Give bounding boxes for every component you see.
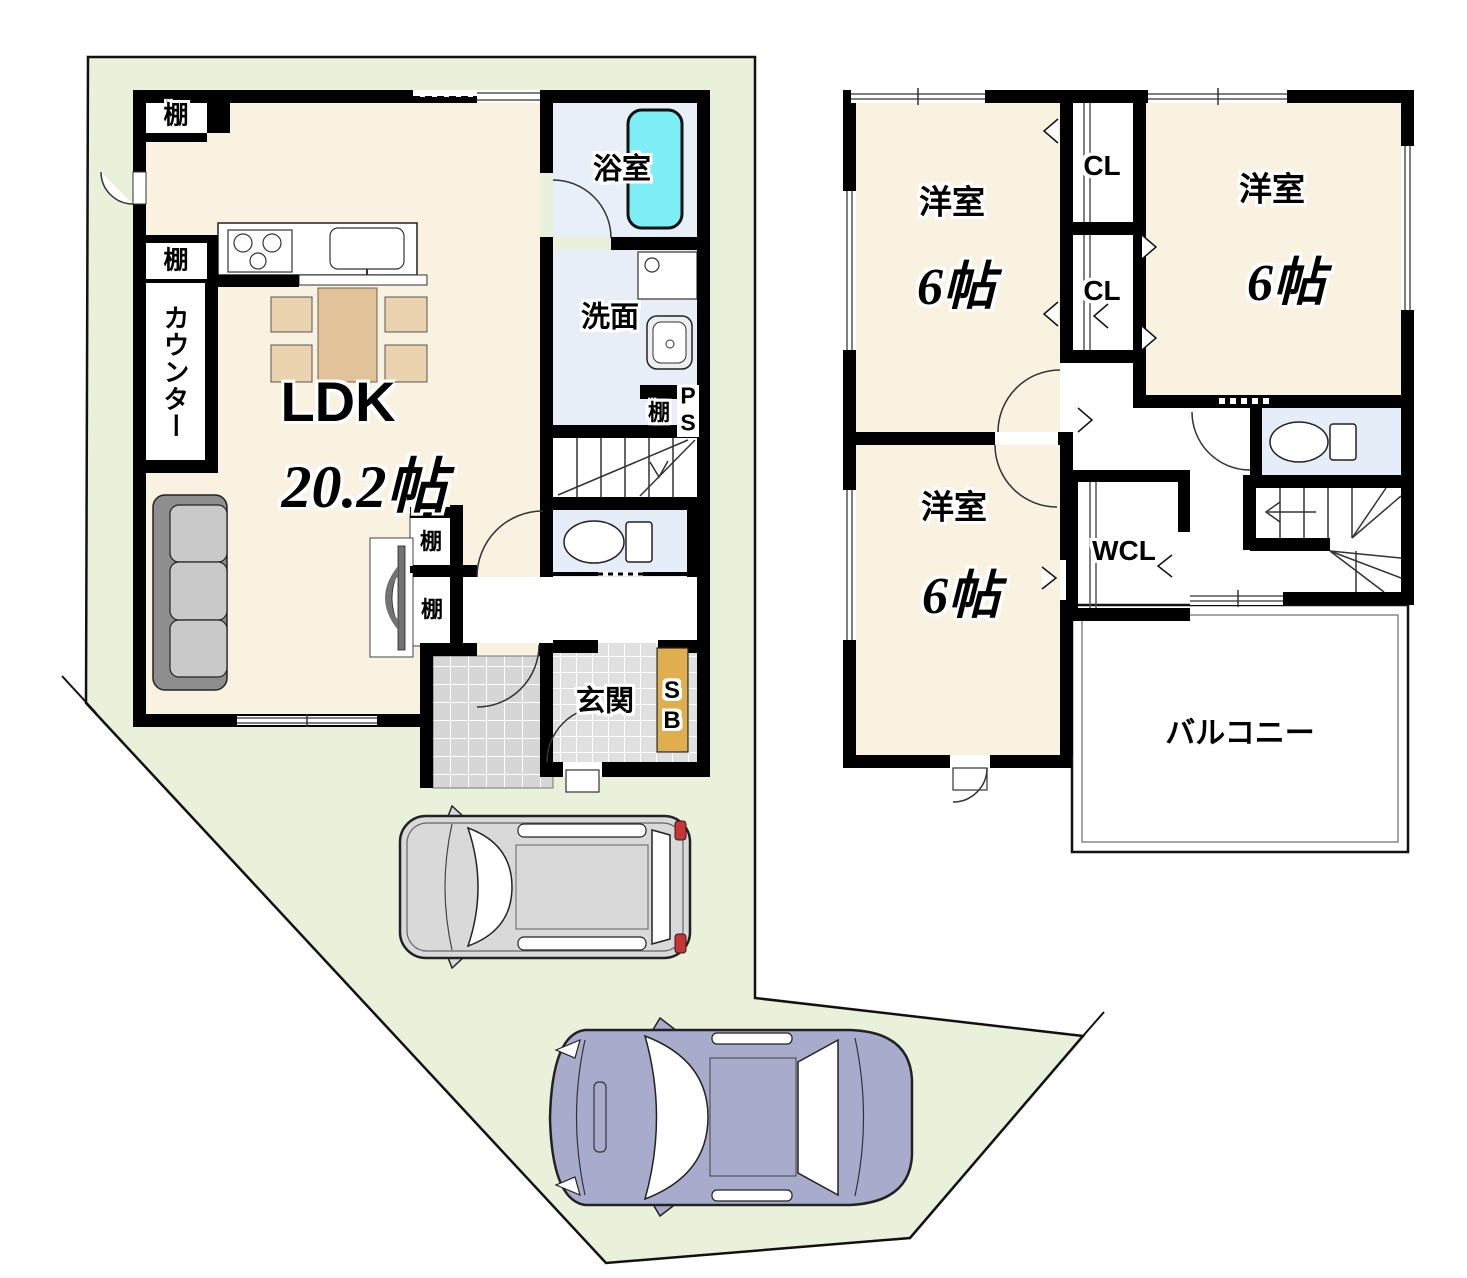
label-shoebox-s: S [664,679,680,703]
label-bath: 浴室 [593,156,651,185]
tv-board [370,538,413,657]
label-balcony: バルコニー [1165,719,1314,749]
label-bedroom1: 洋室 [919,186,985,219]
label-tv-shelf-upper: 棚 [420,531,442,553]
label-washroom: 洗面 [581,304,639,333]
label-bedroom3-size: 6帖 [922,571,1000,623]
label-bedroom2-size: 6帖 [1247,258,1325,310]
label-shelf-mid: 棚 [163,249,188,274]
label-pipe-space-s: S [680,412,695,435]
washer-space [638,252,697,299]
label-bedroom3: 洋室 [921,491,987,524]
label-ldk: LDK [280,374,395,430]
label-pipe-space-p: P [680,385,695,408]
toilet-1f [564,521,652,563]
car-minivan [400,806,690,968]
sofa [153,495,227,690]
floor-plan-page: 棚 浴室 棚 カウンター 洗面 棚 P S LDK 20.2帖 棚 棚 玄関 S… [0,0,1467,1278]
label-counter: カウンター [162,305,188,440]
label-shelf-top: 棚 [163,104,188,129]
car-sedan [550,1018,912,1216]
label-shelf-small: 棚 [648,402,670,424]
label-entrance: 玄関 [576,688,634,717]
label-tv-shelf-lower: 棚 [421,599,443,621]
label-closet2: CL [1083,277,1120,305]
label-shoebox-b: B [663,709,680,733]
label-bedroom2: 洋室 [1239,173,1305,206]
label-closet1: CL [1083,152,1120,180]
label-walk-in-closet: WCL [1092,537,1156,565]
label-ldk-size: 20.2帖 [282,457,447,517]
toilet-2f [1270,422,1356,462]
label-bedroom1-size: 6帖 [917,262,995,314]
wash-basin [647,316,692,369]
